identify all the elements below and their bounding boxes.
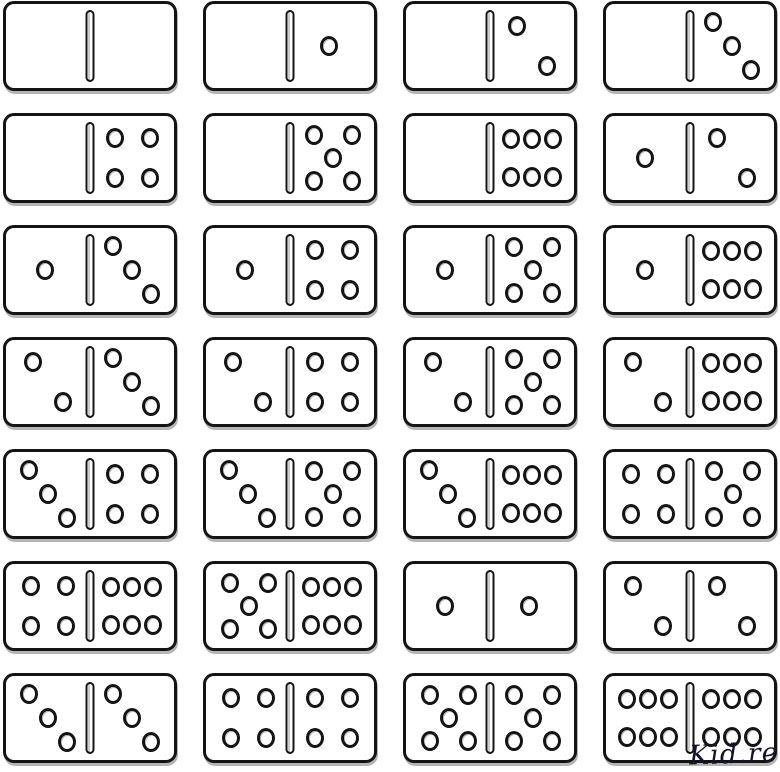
pip (502, 167, 520, 187)
domino-3-6 (403, 449, 577, 539)
pip (305, 171, 323, 191)
pip (257, 728, 275, 748)
domino-half-right (290, 340, 374, 424)
domino-half-left (206, 4, 290, 88)
pip (705, 507, 723, 527)
pip (24, 352, 42, 372)
pip (505, 731, 523, 751)
domino-half-left (206, 228, 290, 312)
pip (123, 260, 141, 280)
pip (36, 260, 54, 280)
pip (58, 508, 76, 528)
pip (22, 576, 40, 596)
domino-sheet: Kid.re (0, 0, 780, 768)
domino-2-2 (603, 561, 777, 651)
pip (743, 461, 761, 481)
pip (440, 708, 458, 728)
pip (543, 731, 561, 751)
domino-3-3 (3, 673, 177, 763)
pip (520, 596, 538, 616)
pip (543, 283, 561, 303)
pip (639, 727, 657, 747)
pip (702, 241, 720, 261)
pip (302, 615, 320, 635)
pip (421, 731, 439, 751)
domino-half-right (690, 116, 774, 200)
pip (236, 260, 254, 280)
pip (524, 260, 542, 280)
domino-0-2 (403, 1, 577, 91)
pip (524, 372, 542, 392)
pip (702, 279, 720, 299)
pip (657, 464, 675, 484)
domino-half-right (490, 564, 574, 648)
pip (123, 577, 141, 597)
pip (654, 392, 672, 412)
pip (543, 237, 561, 257)
pip (341, 280, 359, 300)
pip (324, 484, 342, 504)
pip (57, 576, 75, 596)
domino-half-right (290, 452, 374, 536)
pip (618, 727, 636, 747)
pip (106, 464, 124, 484)
domino-1-3 (3, 225, 177, 315)
pip (458, 508, 476, 528)
pip (436, 260, 454, 280)
pip (142, 284, 160, 304)
watermark: Kid.re (689, 737, 780, 771)
pip (657, 504, 675, 524)
pip (141, 504, 159, 524)
domino-half-left (6, 228, 90, 312)
domino-half-right (290, 116, 374, 200)
pip (708, 576, 726, 596)
pip (20, 460, 38, 480)
domino-half-left (6, 116, 90, 200)
pip (744, 279, 762, 299)
domino-0-6 (403, 113, 577, 203)
domino-half-left (6, 564, 90, 648)
domino-half-right (490, 452, 574, 536)
pip (57, 616, 75, 636)
domino-half-left (6, 340, 90, 424)
domino-half-left (206, 676, 290, 760)
pip (622, 464, 640, 484)
domino-4-5 (603, 449, 777, 539)
pip (344, 577, 362, 597)
pip (708, 128, 726, 148)
domino-half-right (290, 564, 374, 648)
pip (543, 395, 561, 415)
pip (702, 689, 720, 709)
pip (259, 619, 277, 639)
pip (544, 167, 562, 187)
domino-half-left (406, 340, 490, 424)
domino-half-right (90, 4, 174, 88)
pip (622, 504, 640, 524)
pip (523, 167, 541, 187)
pip (421, 685, 439, 705)
domino-3-4 (3, 449, 177, 539)
pip (306, 688, 324, 708)
domino-2-3 (3, 337, 177, 427)
pip (123, 708, 141, 728)
pip (702, 353, 720, 373)
domino-half-right (290, 4, 374, 88)
domino-0-1 (203, 1, 377, 91)
pip (58, 732, 76, 752)
pip (102, 577, 120, 597)
domino-5-5 (403, 673, 577, 763)
pip (323, 615, 341, 635)
pip (221, 619, 239, 639)
domino-half-left (406, 4, 490, 88)
pip (508, 16, 526, 36)
domino-1-2 (603, 113, 777, 203)
pip (744, 689, 762, 709)
pip (538, 56, 556, 76)
domino-half-right (290, 228, 374, 312)
pip (502, 129, 520, 149)
domino-half-left (406, 564, 490, 648)
pip (104, 236, 122, 256)
pip (639, 689, 657, 709)
pip (636, 260, 654, 280)
domino-half-left (6, 676, 90, 760)
pip (505, 283, 523, 303)
pip (660, 727, 678, 747)
pip (341, 728, 359, 748)
pip (341, 352, 359, 372)
pip (144, 615, 162, 635)
domino-0-0 (3, 1, 177, 91)
pip (704, 12, 722, 32)
pip (306, 280, 324, 300)
pip (104, 348, 122, 368)
pip (523, 129, 541, 149)
pip (343, 125, 361, 145)
domino-half-right (690, 228, 774, 312)
pip (123, 372, 141, 392)
domino-half-left (606, 676, 690, 760)
domino-half-right (490, 676, 574, 760)
domino-half-left (606, 340, 690, 424)
pip (505, 395, 523, 415)
pip (723, 36, 741, 56)
domino-half-left (606, 564, 690, 648)
domino-3-5 (203, 449, 377, 539)
domino-half-right (690, 4, 774, 88)
domino-0-5 (203, 113, 377, 203)
domino-0-3 (603, 1, 777, 91)
pip (744, 391, 762, 411)
domino-5-6 (203, 561, 377, 651)
domino-half-right (490, 228, 574, 312)
pip (142, 396, 160, 416)
pip (459, 731, 477, 751)
domino-half-left (606, 452, 690, 536)
pip (306, 728, 324, 748)
pip (502, 503, 520, 523)
pip (454, 392, 472, 412)
domino-0-4 (3, 113, 177, 203)
pip (742, 60, 760, 80)
domino-half-left (206, 340, 290, 424)
pip (436, 596, 454, 616)
pip (323, 577, 341, 597)
pip (221, 573, 239, 593)
domino-half-right (90, 564, 174, 648)
pip (723, 391, 741, 411)
pip (439, 484, 457, 504)
pip (723, 689, 741, 709)
pip (459, 685, 477, 705)
domino-2-4 (203, 337, 377, 427)
domino-half-left (206, 116, 290, 200)
pip (306, 240, 324, 260)
pip (505, 349, 523, 369)
pip (341, 240, 359, 260)
pip (222, 688, 240, 708)
pip (144, 577, 162, 597)
pip (343, 507, 361, 527)
domino-half-left (606, 116, 690, 200)
pip (306, 352, 324, 372)
domino-half-left (606, 4, 690, 88)
pip (224, 352, 242, 372)
pip (505, 237, 523, 257)
domino-half-left (6, 452, 90, 536)
domino-half-right (690, 564, 774, 648)
pip (39, 708, 57, 728)
domino-half-right (490, 4, 574, 88)
pip (743, 507, 761, 527)
pip (723, 353, 741, 373)
domino-half-left (606, 228, 690, 312)
pip (258, 508, 276, 528)
domino-half-left (406, 116, 490, 200)
domino-half-right (290, 676, 374, 760)
domino-4-6 (3, 561, 177, 651)
pip (305, 125, 323, 145)
pip (240, 596, 258, 616)
pip (744, 241, 762, 261)
domino-4-4 (203, 673, 377, 763)
pip (141, 464, 159, 484)
pip (424, 352, 442, 372)
pip (524, 708, 542, 728)
pip (102, 615, 120, 635)
domino-half-right (90, 676, 174, 760)
pip (20, 684, 38, 704)
pip (544, 465, 562, 485)
domino-2-6 (603, 337, 777, 427)
pip (724, 484, 742, 504)
pip (239, 484, 257, 504)
pip (302, 577, 320, 597)
pip (22, 616, 40, 636)
pip (702, 391, 720, 411)
pip (257, 688, 275, 708)
domino-1-5 (403, 225, 577, 315)
domino-1-1 (403, 561, 577, 651)
domino-half-left (406, 452, 490, 536)
pip (305, 507, 323, 527)
pip (343, 171, 361, 191)
pip (738, 616, 756, 636)
pip (705, 461, 723, 481)
pip (654, 616, 672, 636)
pip (341, 392, 359, 412)
domino-half-right (90, 452, 174, 536)
pip (254, 392, 272, 412)
pip (222, 728, 240, 748)
domino-half-right (490, 116, 574, 200)
pip (636, 148, 654, 168)
pip (320, 36, 338, 56)
domino-half-left (206, 564, 290, 648)
pip (544, 503, 562, 523)
pip (723, 279, 741, 299)
pip (544, 129, 562, 149)
pip (738, 168, 756, 188)
pip (543, 685, 561, 705)
pip (106, 128, 124, 148)
domino-half-right (490, 340, 574, 424)
pip (324, 148, 342, 168)
pip (305, 461, 323, 481)
domino-half-left (206, 452, 290, 536)
domino-1-4 (203, 225, 377, 315)
pip (502, 465, 520, 485)
pip (141, 128, 159, 148)
pip (259, 573, 277, 593)
pip (220, 460, 238, 480)
domino-half-left (6, 4, 90, 88)
pip (306, 392, 324, 412)
pip (723, 241, 741, 261)
pip (523, 503, 541, 523)
pip (543, 349, 561, 369)
domino-half-right (690, 452, 774, 536)
pip (344, 615, 362, 635)
pip (523, 465, 541, 485)
pip (106, 504, 124, 524)
pip (624, 576, 642, 596)
domino-half-right (690, 340, 774, 424)
pip (660, 689, 678, 709)
pip (420, 460, 438, 480)
pip (624, 352, 642, 372)
domino-half-right (90, 228, 174, 312)
pip (106, 168, 124, 188)
pip (505, 685, 523, 705)
pip (343, 461, 361, 481)
pip (341, 688, 359, 708)
pip (618, 689, 636, 709)
domino-half-right (90, 116, 174, 200)
pip (104, 684, 122, 704)
pip (142, 732, 160, 752)
domino-half-right (90, 340, 174, 424)
pip (744, 353, 762, 373)
pip (54, 392, 72, 412)
domino-1-6 (603, 225, 777, 315)
domino-half-left (406, 228, 490, 312)
domino-half-left (406, 676, 490, 760)
pip (123, 615, 141, 635)
pip (39, 484, 57, 504)
pip (141, 168, 159, 188)
domino-2-5 (403, 337, 577, 427)
